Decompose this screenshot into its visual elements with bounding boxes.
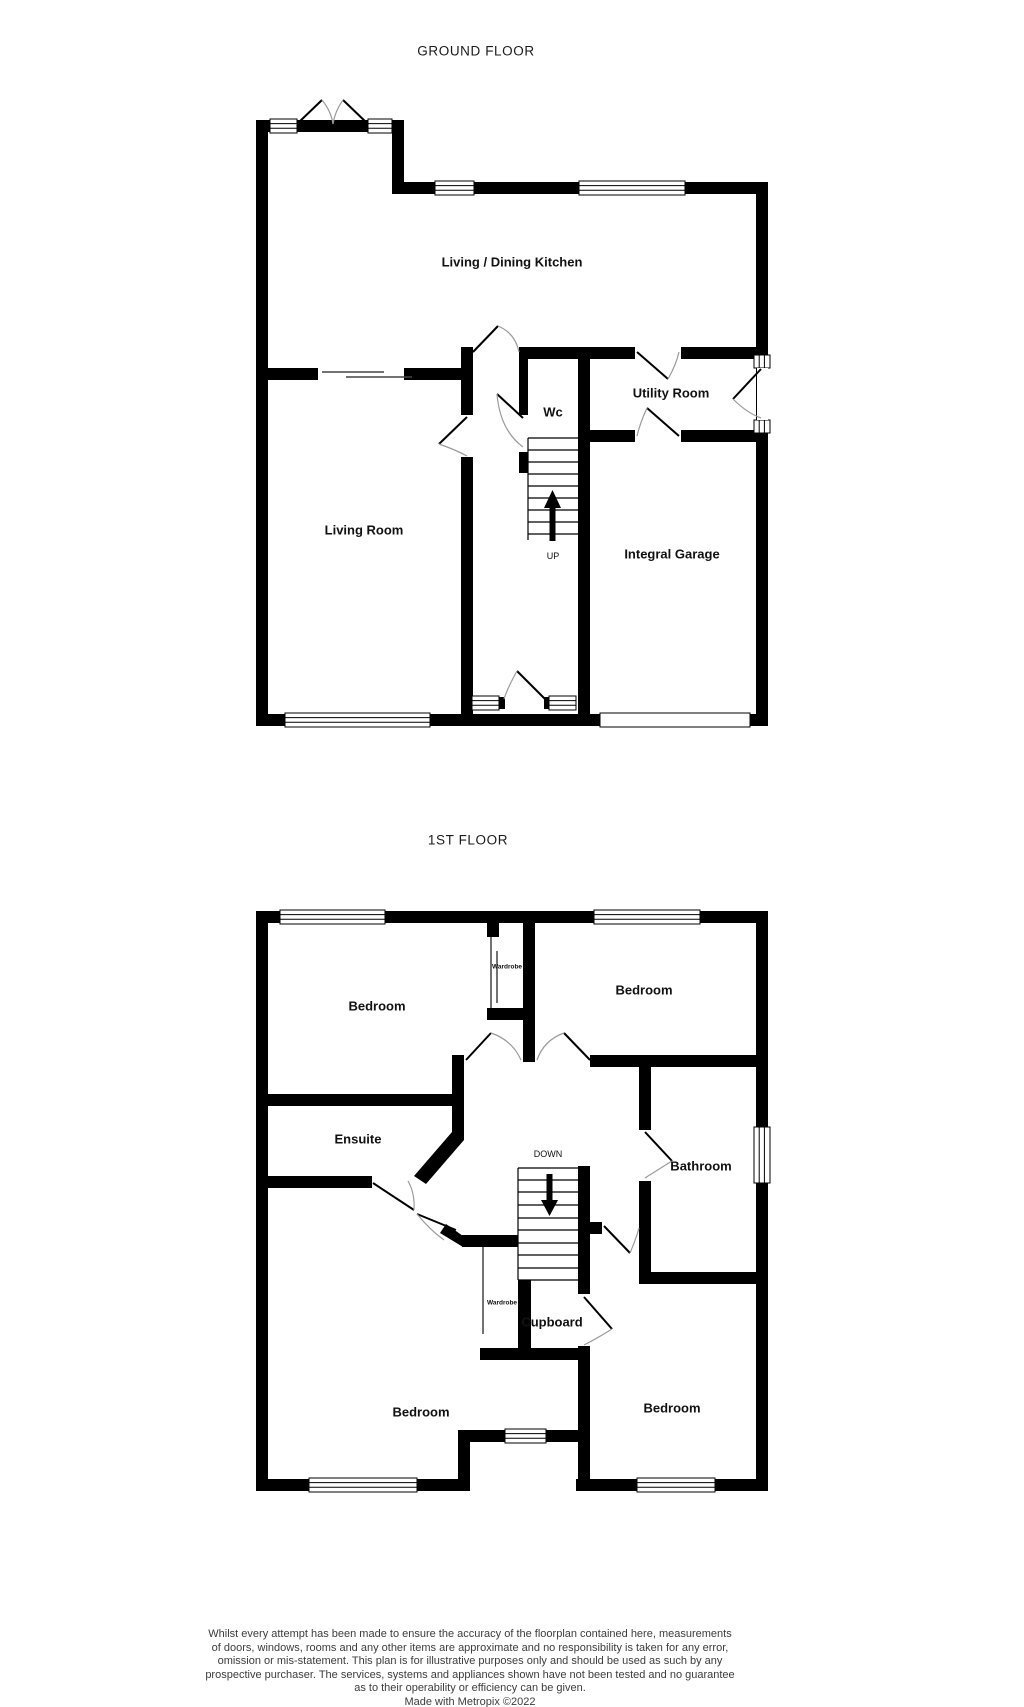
- ground-floor-windows: [270, 119, 770, 727]
- ground-floor-plan: [256, 100, 770, 727]
- disclaimer-line: prospective purchaser. The services, sys…: [140, 1669, 800, 1683]
- wardrobe-fronts: [483, 937, 497, 1334]
- room-label-utility-room: Utility Room: [633, 386, 710, 401]
- door-bedroom-top-right: [537, 1033, 590, 1060]
- disclaimer-line: of doors, windows, rooms and any other i…: [140, 1642, 800, 1656]
- room-label-bedroom-top-left: Bedroom: [348, 999, 405, 1014]
- disclaimer-line: omission or mis-statement. This plan is …: [140, 1655, 800, 1669]
- window: [637, 1478, 715, 1492]
- door-kitchen-hall: [473, 326, 519, 352]
- room-label-kitchen: Living / Dining Kitchen: [442, 255, 583, 270]
- disclaimer-line: as to their operability or efficiency ca…: [140, 1682, 800, 1696]
- door-ensuite: [373, 1181, 414, 1210]
- credit-line: Made with Metropix ©2022: [140, 1696, 800, 1707]
- window: [270, 119, 297, 133]
- room-label-bedroom-bottom-left: Bedroom: [392, 1405, 449, 1420]
- window: [579, 181, 685, 195]
- window: [754, 1127, 770, 1183]
- ground-floor-title: GROUND FLOOR: [417, 44, 534, 59]
- room-label-wc: Wc: [543, 405, 563, 420]
- disclaimer-line: Whilst every attempt has been made to en…: [140, 1628, 800, 1642]
- first-floor-title: 1ST FLOOR: [428, 833, 508, 848]
- room-label-ensuite: Ensuite: [335, 1132, 382, 1147]
- window: [368, 119, 392, 133]
- window: [594, 910, 700, 924]
- door-kitchen-utility: [637, 352, 679, 379]
- window: [285, 713, 430, 727]
- room-label-bedroom-bottom-right: Bedroom: [643, 1401, 700, 1416]
- window: [505, 1429, 546, 1443]
- ground-floor-walls: [256, 120, 768, 726]
- room-label-cupboard: Cupboard: [521, 1315, 582, 1330]
- door-bathroom: [645, 1132, 672, 1178]
- door-bedroom-top-left: [466, 1033, 521, 1060]
- window: [435, 181, 474, 195]
- window: [309, 1478, 417, 1492]
- room-label-bedroom-top-right: Bedroom: [615, 983, 672, 998]
- door-cupboard: [584, 1297, 612, 1345]
- window: [472, 696, 499, 710]
- door-bedroom-bottom-right: [604, 1226, 639, 1253]
- wardrobe-bottom-label: Wardrobe: [487, 1300, 517, 1307]
- window: [280, 910, 385, 924]
- stairs-down-label: DOWN: [534, 1149, 563, 1159]
- door-living-hall: [439, 417, 467, 456]
- wardrobe-top-label: Wardrobe: [492, 964, 522, 971]
- disclaimer-text: Whilst every attempt has been made to en…: [140, 1628, 800, 1707]
- room-label-bathroom: Bathroom: [670, 1159, 731, 1174]
- window: [549, 696, 576, 710]
- window: [754, 420, 770, 433]
- room-label-garage: Integral Garage: [624, 547, 719, 562]
- staircase-up: [528, 438, 578, 541]
- door-utility-garage: [637, 408, 679, 436]
- room-label-living-room: Living Room: [325, 523, 404, 538]
- utility-exterior-door-gap: [757, 368, 768, 420]
- front-door: [504, 671, 545, 699]
- window: [754, 355, 770, 368]
- garage-door: [600, 713, 750, 727]
- staircase-down: [518, 1168, 578, 1280]
- room-divider-opening: [322, 372, 412, 377]
- stairs-up-label: UP: [547, 551, 560, 561]
- floorplan-page: GROUND FLOOR Living / Dining Kitchen Liv…: [0, 0, 1024, 1707]
